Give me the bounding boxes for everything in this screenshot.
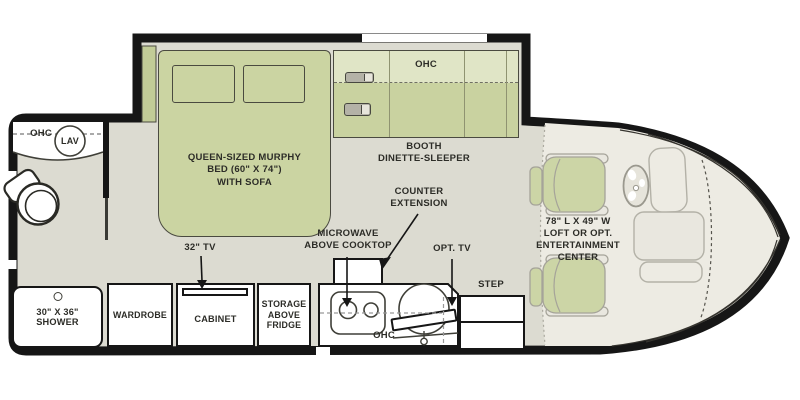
annotation-overlay <box>0 0 800 400</box>
arrow-opt-tv <box>447 259 457 306</box>
arrow-32-tv <box>197 256 207 289</box>
arrow-counter-extension <box>379 214 418 270</box>
rv-floorplan: QUEEN-SIZED MURPHY BED (60" X 74") WITH … <box>0 0 800 400</box>
arrow-microwave <box>342 257 352 307</box>
